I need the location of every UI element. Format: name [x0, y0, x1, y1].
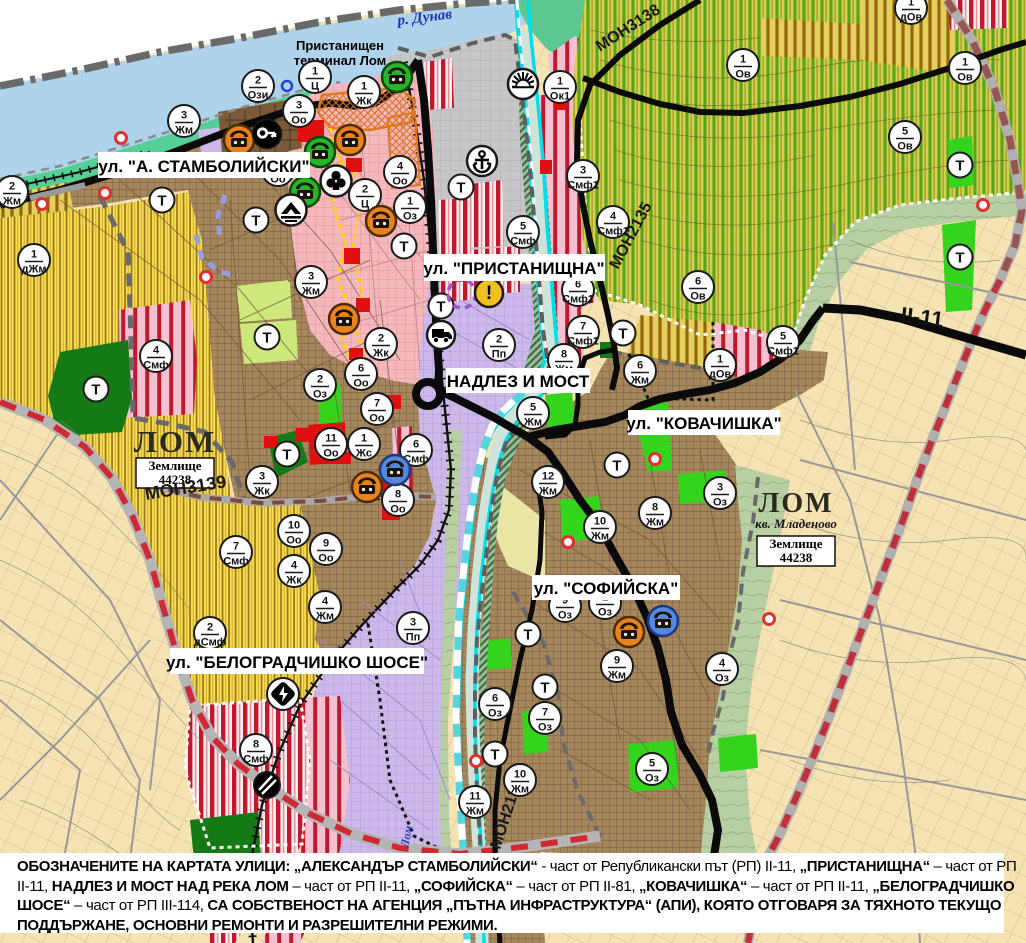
svg-text:3: 3	[181, 110, 187, 122]
svg-text:Оо: Оо	[390, 504, 406, 516]
svg-text:6: 6	[695, 276, 701, 288]
svg-text:!: !	[486, 283, 492, 304]
svg-text:10: 10	[594, 516, 606, 528]
svg-text:44238: 44238	[780, 550, 813, 565]
svg-text:3: 3	[296, 100, 302, 112]
svg-text:Ов: Ов	[735, 69, 751, 81]
svg-text:Оо: Оо	[392, 176, 408, 188]
svg-text:дЖм: дЖм	[21, 264, 46, 276]
svg-text:Т: Т	[157, 193, 166, 210]
svg-text:Жм: Жм	[607, 670, 626, 682]
svg-text:8: 8	[253, 739, 259, 751]
svg-text:Т: Т	[490, 747, 499, 764]
svg-text:Т: Т	[523, 627, 532, 644]
svg-text:Пп: Пп	[406, 632, 421, 644]
svg-text:7: 7	[374, 398, 380, 410]
svg-text:8: 8	[652, 502, 658, 514]
svg-text:5: 5	[649, 758, 655, 770]
svg-text:3: 3	[717, 482, 723, 494]
svg-text:ул. "А. СТАМБОЛИЙСКИ": ул. "А. СТАМБОЛИЙСКИ"	[98, 157, 309, 176]
svg-text:1: 1	[908, 0, 914, 9]
svg-text:Оз: Оз	[403, 211, 418, 223]
svg-text:Т: Т	[436, 299, 445, 316]
svg-text:Жм: Жм	[645, 517, 664, 529]
svg-text:2: 2	[378, 333, 384, 345]
svg-text:4: 4	[153, 345, 160, 357]
svg-text:2: 2	[317, 374, 323, 386]
svg-text:5: 5	[780, 331, 786, 343]
svg-text:дОв: дОв	[709, 369, 732, 381]
svg-text:Ов: Ов	[690, 291, 706, 303]
svg-text:Жм: Жм	[2, 196, 21, 208]
svg-text:Смф1: Смф1	[767, 346, 799, 358]
svg-text:11: 11	[469, 791, 481, 803]
svg-text:Жк: Жк	[355, 96, 372, 108]
svg-text:Оо: Оо	[286, 535, 302, 547]
svg-text:Оз: Оз	[645, 773, 660, 785]
svg-text:Т: Т	[399, 239, 408, 256]
svg-text:4: 4	[322, 596, 329, 608]
svg-text:Ов: Ов	[897, 141, 913, 153]
svg-text:1: 1	[740, 54, 746, 66]
svg-text:1: 1	[361, 81, 367, 93]
svg-text:Жм: Жм	[174, 125, 193, 137]
svg-text:Пп: Пп	[492, 349, 507, 361]
svg-text:Оо: Оо	[318, 553, 334, 565]
svg-text:Жм: Жм	[301, 286, 320, 298]
svg-text:Оо: Оо	[353, 378, 369, 390]
svg-text:Т: Т	[618, 326, 627, 343]
svg-text:Оз: Оз	[538, 722, 553, 734]
svg-text:Пристанищен: Пристанищен	[296, 38, 384, 53]
svg-text:5: 5	[530, 402, 536, 414]
svg-text:Жм: Жм	[523, 417, 542, 429]
svg-text:2: 2	[9, 181, 15, 193]
svg-text:ул. "КОВАЧИШКА": ул. "КОВАЧИШКА"	[626, 414, 782, 433]
svg-text:Оз: Оз	[558, 610, 573, 622]
svg-text:10: 10	[288, 520, 300, 532]
svg-text:Оз: Оз	[598, 607, 613, 619]
svg-text:Оз: Оз	[713, 497, 728, 509]
svg-text:9: 9	[614, 655, 620, 667]
svg-text:Оз: Оз	[313, 389, 328, 401]
svg-text:Жм: Жм	[465, 806, 484, 818]
svg-text:НАДЛЕЗ И МОСТ: НАДЛЕЗ И МОСТ	[447, 372, 590, 391]
svg-text:Ок1: Ок1	[550, 91, 570, 103]
svg-text:7: 7	[542, 707, 548, 719]
svg-text:ЛОМ: ЛОМ	[134, 424, 216, 459]
svg-text:3: 3	[308, 271, 314, 283]
svg-text:Т: Т	[540, 680, 549, 697]
svg-text:II-11: II-11	[899, 302, 945, 332]
svg-text:Т: Т	[456, 180, 465, 197]
svg-text:Т: Т	[955, 158, 964, 175]
svg-text:Смф: Смф	[223, 556, 249, 568]
svg-text:Оз: Оз	[715, 673, 730, 685]
svg-text:3: 3	[259, 471, 265, 483]
svg-text:ул. "СОФИЙСКА": ул. "СОФИЙСКА"	[534, 579, 679, 598]
svg-text:7: 7	[580, 321, 586, 333]
svg-text:Смф: Смф	[510, 236, 536, 248]
svg-text:6: 6	[637, 360, 643, 372]
svg-text:Жс: Жс	[355, 448, 372, 460]
svg-text:8: 8	[395, 489, 401, 501]
svg-text:1: 1	[717, 354, 723, 366]
svg-text:1: 1	[361, 433, 367, 445]
svg-text:Оо: Оо	[323, 448, 339, 460]
svg-text:Землище: Землище	[148, 458, 201, 473]
svg-text:5: 5	[520, 221, 526, 233]
svg-text:11: 11	[325, 433, 337, 445]
svg-text:8: 8	[561, 349, 567, 361]
svg-text:Ц: Ц	[311, 81, 319, 93]
svg-text:1: 1	[312, 66, 318, 78]
svg-text:1: 1	[962, 57, 968, 69]
svg-text:Жм: Жм	[315, 611, 334, 623]
svg-text:2: 2	[496, 334, 502, 346]
svg-text:Смф: Смф	[243, 754, 269, 766]
svg-text:Жм: Жм	[538, 486, 557, 498]
svg-text:Т: Т	[282, 447, 291, 464]
svg-text:5: 5	[902, 126, 908, 138]
svg-text:Ози: Ози	[248, 90, 269, 102]
svg-text:Т: Т	[262, 330, 271, 347]
svg-text:3: 3	[410, 617, 416, 629]
svg-text:дСмф: дСмф	[194, 637, 227, 649]
svg-text:Оо: Оо	[291, 115, 307, 127]
svg-text:6: 6	[413, 439, 419, 451]
svg-text:3: 3	[580, 165, 586, 177]
svg-text:4: 4	[291, 560, 298, 572]
svg-text:ул. "ПРИСТАНИЩНА": ул. "ПРИСТАНИЩНА"	[423, 259, 604, 278]
svg-text:10: 10	[514, 769, 526, 781]
svg-text:1: 1	[557, 76, 563, 88]
svg-text:7: 7	[233, 541, 239, 553]
svg-text:Жм: Жм	[630, 375, 649, 387]
svg-text:2: 2	[255, 75, 261, 87]
svg-text:ЛОМ: ЛОМ	[758, 488, 833, 519]
svg-text:Т: Т	[251, 213, 260, 230]
svg-text:Оо: Оо	[369, 413, 385, 425]
svg-text:9: 9	[323, 538, 329, 550]
svg-text:Смф1: Смф1	[562, 294, 594, 306]
svg-text:Землище: Землище	[769, 536, 822, 551]
svg-text:дОв: дОв	[900, 12, 923, 24]
svg-text:Смф1: Смф1	[567, 180, 599, 192]
svg-text:Смф1: Смф1	[597, 226, 629, 238]
svg-text:Оз: Оз	[488, 708, 503, 720]
svg-text:Жк: Жк	[285, 575, 302, 587]
svg-text:4: 4	[719, 658, 726, 670]
svg-text:Жк: Жк	[372, 348, 389, 360]
svg-text:4: 4	[610, 211, 617, 223]
svg-text:Т: Т	[612, 458, 621, 475]
svg-text:1: 1	[407, 196, 413, 208]
svg-text:кв. Младеново: кв. Младеново	[755, 516, 837, 531]
svg-text:Т: Т	[955, 250, 964, 267]
svg-text:4: 4	[397, 161, 404, 173]
svg-text:ул. "БЕЛОГРАДЧИШКО ШОСЕ": ул. "БЕЛОГРАДЧИШКО ШОСЕ"	[166, 653, 428, 672]
svg-text:Ов: Ов	[957, 72, 973, 84]
svg-text:Жк: Жк	[253, 486, 270, 498]
svg-text:2: 2	[207, 622, 213, 634]
svg-text:1: 1	[31, 249, 37, 261]
svg-text:Жм: Жм	[510, 784, 529, 796]
svg-text:2: 2	[362, 184, 368, 196]
svg-text:6: 6	[358, 363, 364, 375]
svg-text:Смф: Смф	[143, 360, 169, 372]
svg-text:Жм: Жм	[590, 531, 609, 543]
svg-text:6: 6	[492, 693, 498, 705]
svg-text:12: 12	[542, 471, 554, 483]
svg-text:Ц: Ц	[361, 199, 369, 211]
svg-text:Т: Т	[91, 382, 100, 399]
